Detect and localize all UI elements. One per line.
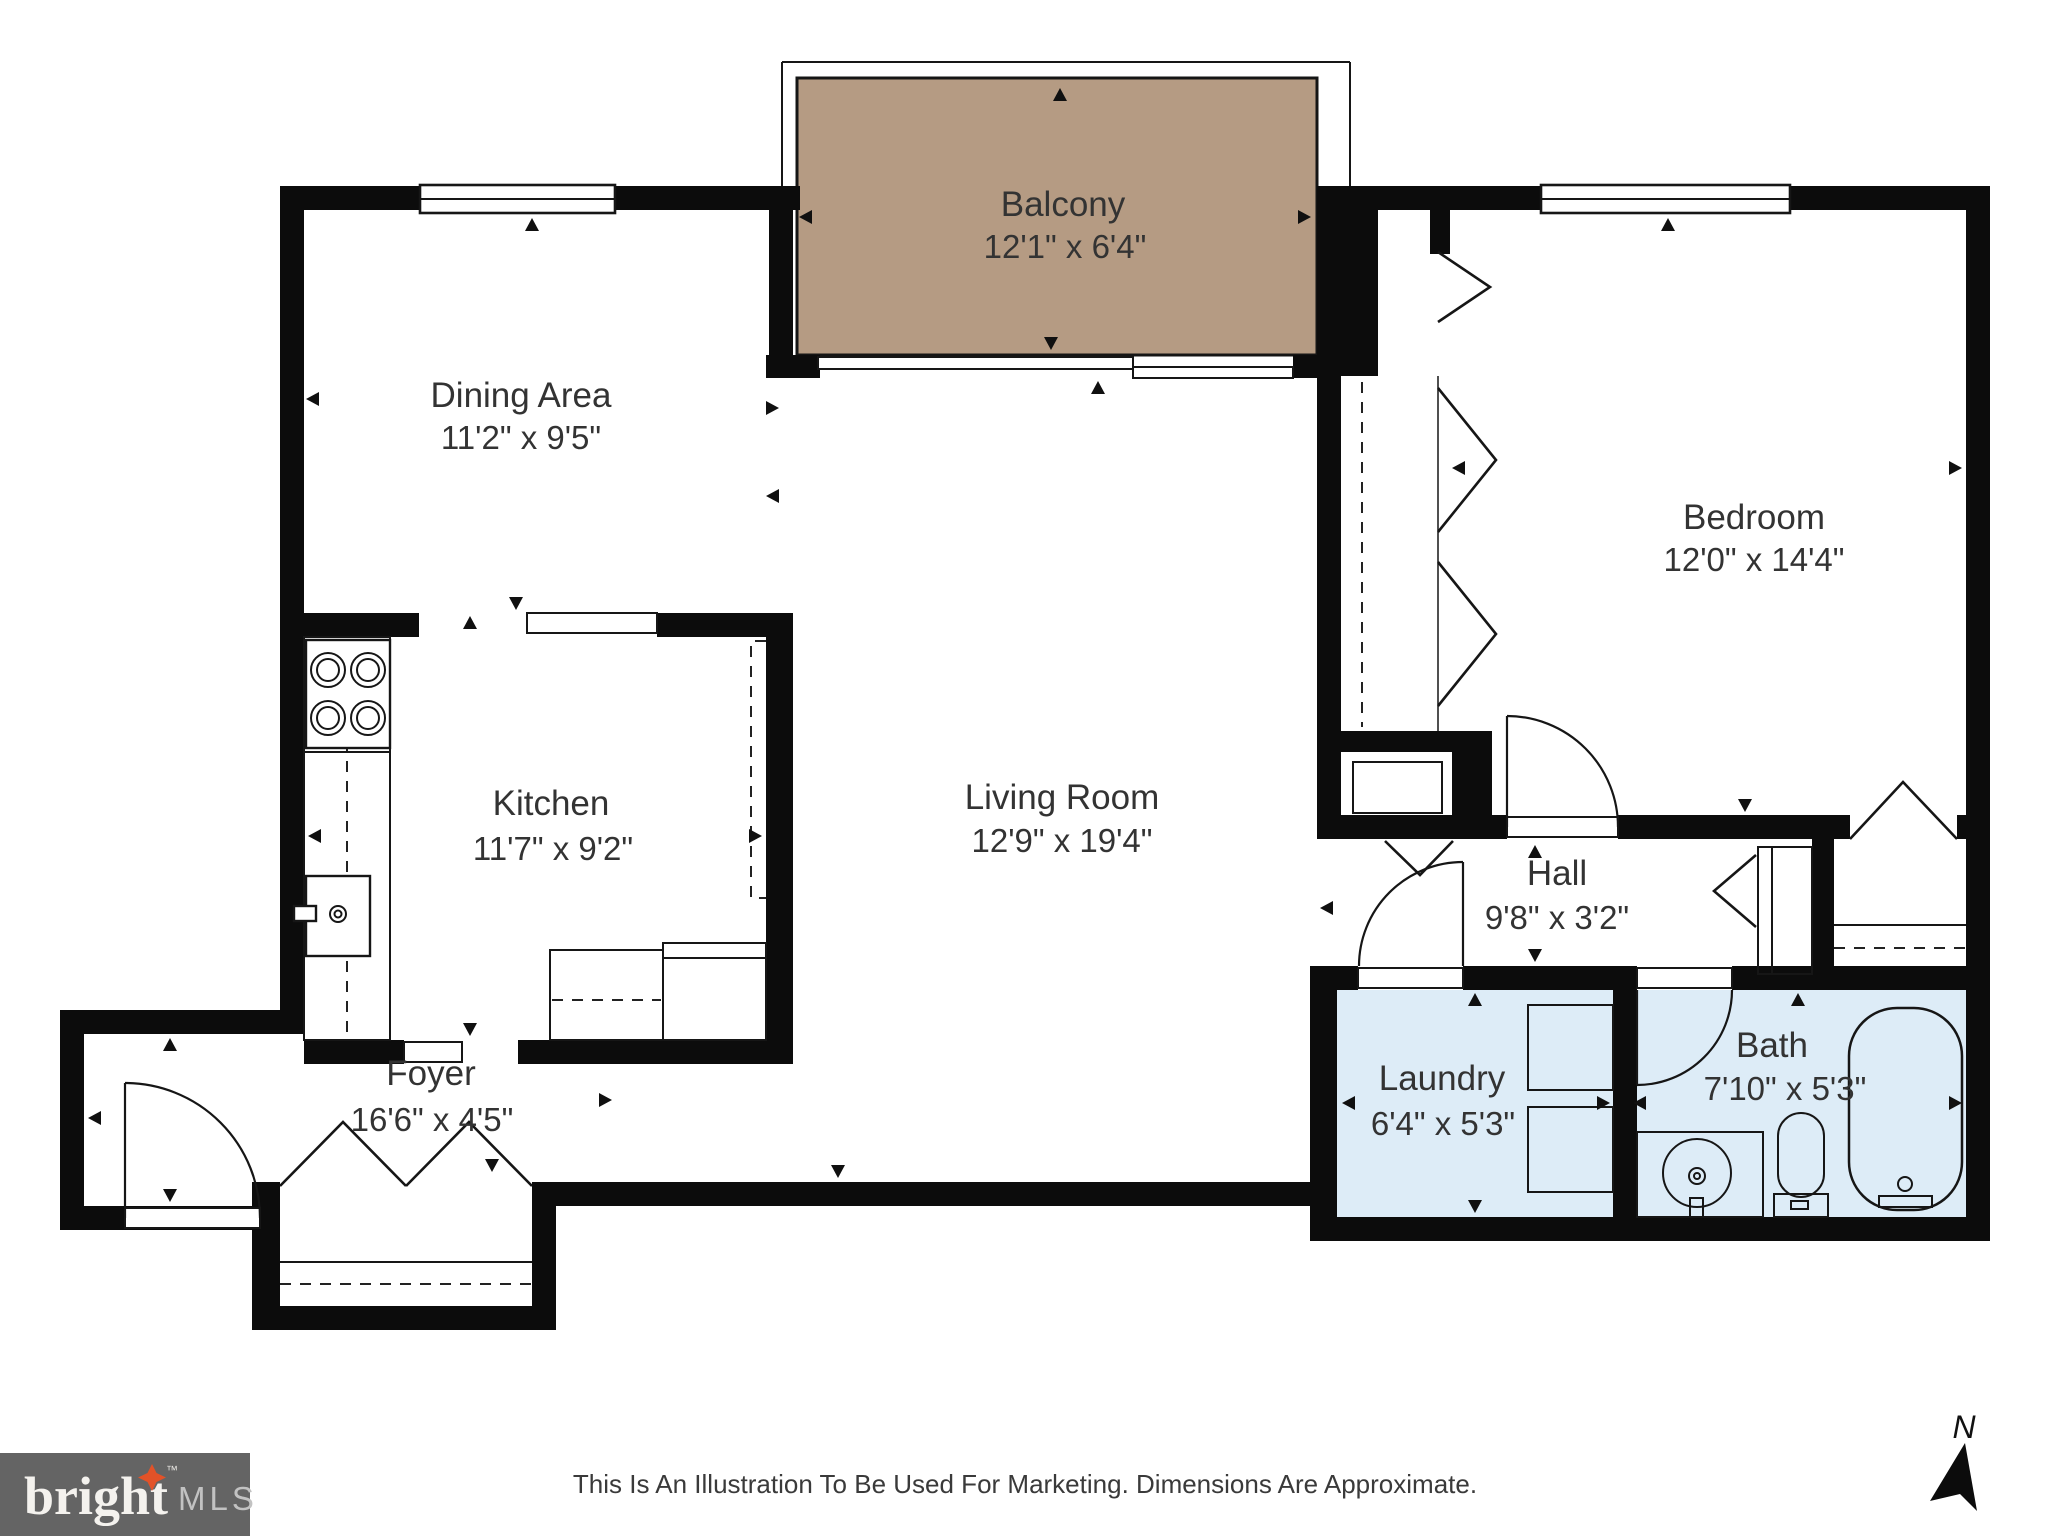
wall-slider-left-jamb	[766, 355, 820, 378]
hall-door-sill	[1358, 968, 1463, 988]
bedroom-closet-bifold-2	[1438, 388, 1496, 532]
hall-dims: 9'8" x 3'2"	[1485, 899, 1629, 936]
wall-foyer-top	[60, 1010, 304, 1034]
wall-bedroom-closet-stub	[1430, 210, 1450, 254]
wall-slider-right-jamb	[1293, 355, 1319, 378]
bedroom-dims: 12'0" x 14'4"	[1664, 541, 1845, 578]
bath-label: Bath	[1736, 1026, 1808, 1065]
hall-closet-panel-1	[1758, 847, 1772, 974]
bath-door-sill	[1637, 968, 1732, 988]
hall-door-swing	[1359, 862, 1463, 966]
dining-dims: 11'2" x 9'5"	[441, 419, 601, 456]
wall-kitchen-top-a	[304, 613, 419, 637]
wall-laundry-west	[1310, 966, 1337, 1241]
wall-wet-bottom	[1310, 1217, 1990, 1241]
sliding-door-panel-1	[818, 357, 1133, 369]
laundry-floor	[1337, 990, 1613, 1217]
laundry-label: Laundry	[1379, 1059, 1506, 1098]
kitchen-upper-cabinets-dashed	[751, 641, 766, 898]
entry-door-swing	[125, 1083, 260, 1218]
wall-kitchen-top-b	[657, 613, 766, 637]
bedroom-door-swing	[1507, 716, 1618, 827]
wall-kitchen-bottom-b	[518, 1040, 766, 1064]
floor-plan-page: Balcony 12'1" x 6'4" Dining Area 11'2" x…	[0, 0, 2048, 1536]
bedroom-closet-bifold-3	[1438, 562, 1496, 706]
wall-balcony-left	[769, 210, 793, 357]
wall-hall-top-c	[1957, 815, 1990, 839]
wall-utility-bottom	[1317, 815, 1492, 839]
se-closet-bifold	[1850, 782, 1957, 839]
hall-label: Hall	[1527, 854, 1587, 893]
north-arrow-icon: N	[1930, 1409, 1977, 1511]
brand-mls-text: MLS	[178, 1480, 258, 1517]
sliding-door-panel-2	[1133, 367, 1293, 378]
wall-entry-closet-right	[532, 1182, 556, 1330]
entry-door-sill	[125, 1208, 260, 1228]
utility-closet-bifold	[1385, 841, 1453, 875]
stove-icon	[306, 640, 390, 748]
brand-tm: ™	[166, 1463, 178, 1477]
floor-plan-canvas: Balcony 12'1" x 6'4" Dining Area 11'2" x…	[0, 0, 2048, 1536]
wall-right	[1966, 186, 1990, 1241]
wall-hall-bottom-b	[1463, 966, 1637, 990]
utility-closet-box	[1353, 762, 1442, 813]
wall-kitchen-right	[766, 613, 793, 1064]
living-room-dims: 12'9" x 19'4"	[972, 822, 1153, 859]
wall-hall-top-b	[1618, 815, 1850, 839]
bedroom-label: Bedroom	[1683, 498, 1825, 537]
wall-foyer-left	[60, 1010, 84, 1230]
dishwasher-icon	[550, 950, 663, 1040]
wall-hall-closet-right	[1812, 839, 1834, 966]
kitchen-label: Kitchen	[493, 784, 610, 823]
balcony-dims: 12'1" x 6'4"	[984, 228, 1147, 265]
wall-laundry-bath-divider	[1613, 990, 1637, 1217]
wall-hall-bottom-a	[1337, 966, 1358, 990]
balcony-label: Balcony	[1001, 185, 1126, 224]
kitchen-passthrough	[527, 613, 657, 633]
foyer-label: Foyer	[386, 1054, 476, 1093]
disclaimer-text: This Is An Illustration To Be Used For M…	[573, 1469, 1477, 1499]
bath-dims: 7'10" x 5'3"	[1704, 1070, 1867, 1107]
kitchen-dims: 11'7" x 9'2"	[473, 830, 633, 867]
hall-closet-panel-2	[1772, 847, 1812, 974]
foyer-dims: 16'6" x 4'5"	[351, 1101, 514, 1138]
footer: bright ™ MLS This Is An Illustration To …	[0, 1409, 1977, 1536]
bedroom-closet-bifold-1	[1438, 252, 1490, 322]
dining-label: Dining Area	[431, 376, 612, 415]
laundry-dims: 6'4" x 5'3"	[1371, 1105, 1515, 1142]
north-label: N	[1952, 1409, 1976, 1445]
bedroom-door-sill	[1507, 817, 1618, 837]
wall-hall-bottom-c	[1732, 966, 1966, 990]
wall-living-bottom	[556, 1182, 1334, 1206]
wall-entry-closet-bottom	[252, 1306, 556, 1330]
kitchen-sink-icon	[294, 876, 370, 956]
living-room-label: Living Room	[965, 778, 1160, 817]
wall-closet-west	[1317, 376, 1341, 839]
hall-closet-bifold	[1714, 855, 1756, 927]
wall-balcony-pillar	[1317, 186, 1378, 376]
wall-hall-top-a	[1492, 815, 1507, 839]
